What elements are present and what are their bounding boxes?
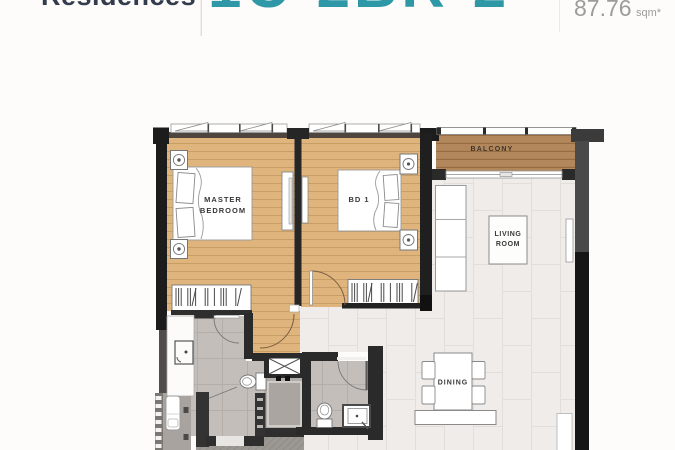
svg-text:BD 1: BD 1: [348, 195, 369, 204]
svg-text:1C-2BR-2: 1C-2BR-2: [208, 0, 510, 20]
svg-text:MASTER: MASTER: [204, 195, 242, 204]
svg-text:ROOM: ROOM: [496, 241, 520, 248]
svg-text:BALCONY: BALCONY: [470, 146, 513, 153]
svg-text:87.76: 87.76: [574, 0, 632, 21]
svg-text:sqm*: sqm*: [636, 7, 662, 19]
svg-text:Residences: Residences: [41, 0, 196, 11]
svg-text:DINING: DINING: [438, 380, 469, 387]
svg-text:LIVING: LIVING: [495, 231, 522, 238]
svg-text:BEDROOM: BEDROOM: [200, 206, 246, 215]
